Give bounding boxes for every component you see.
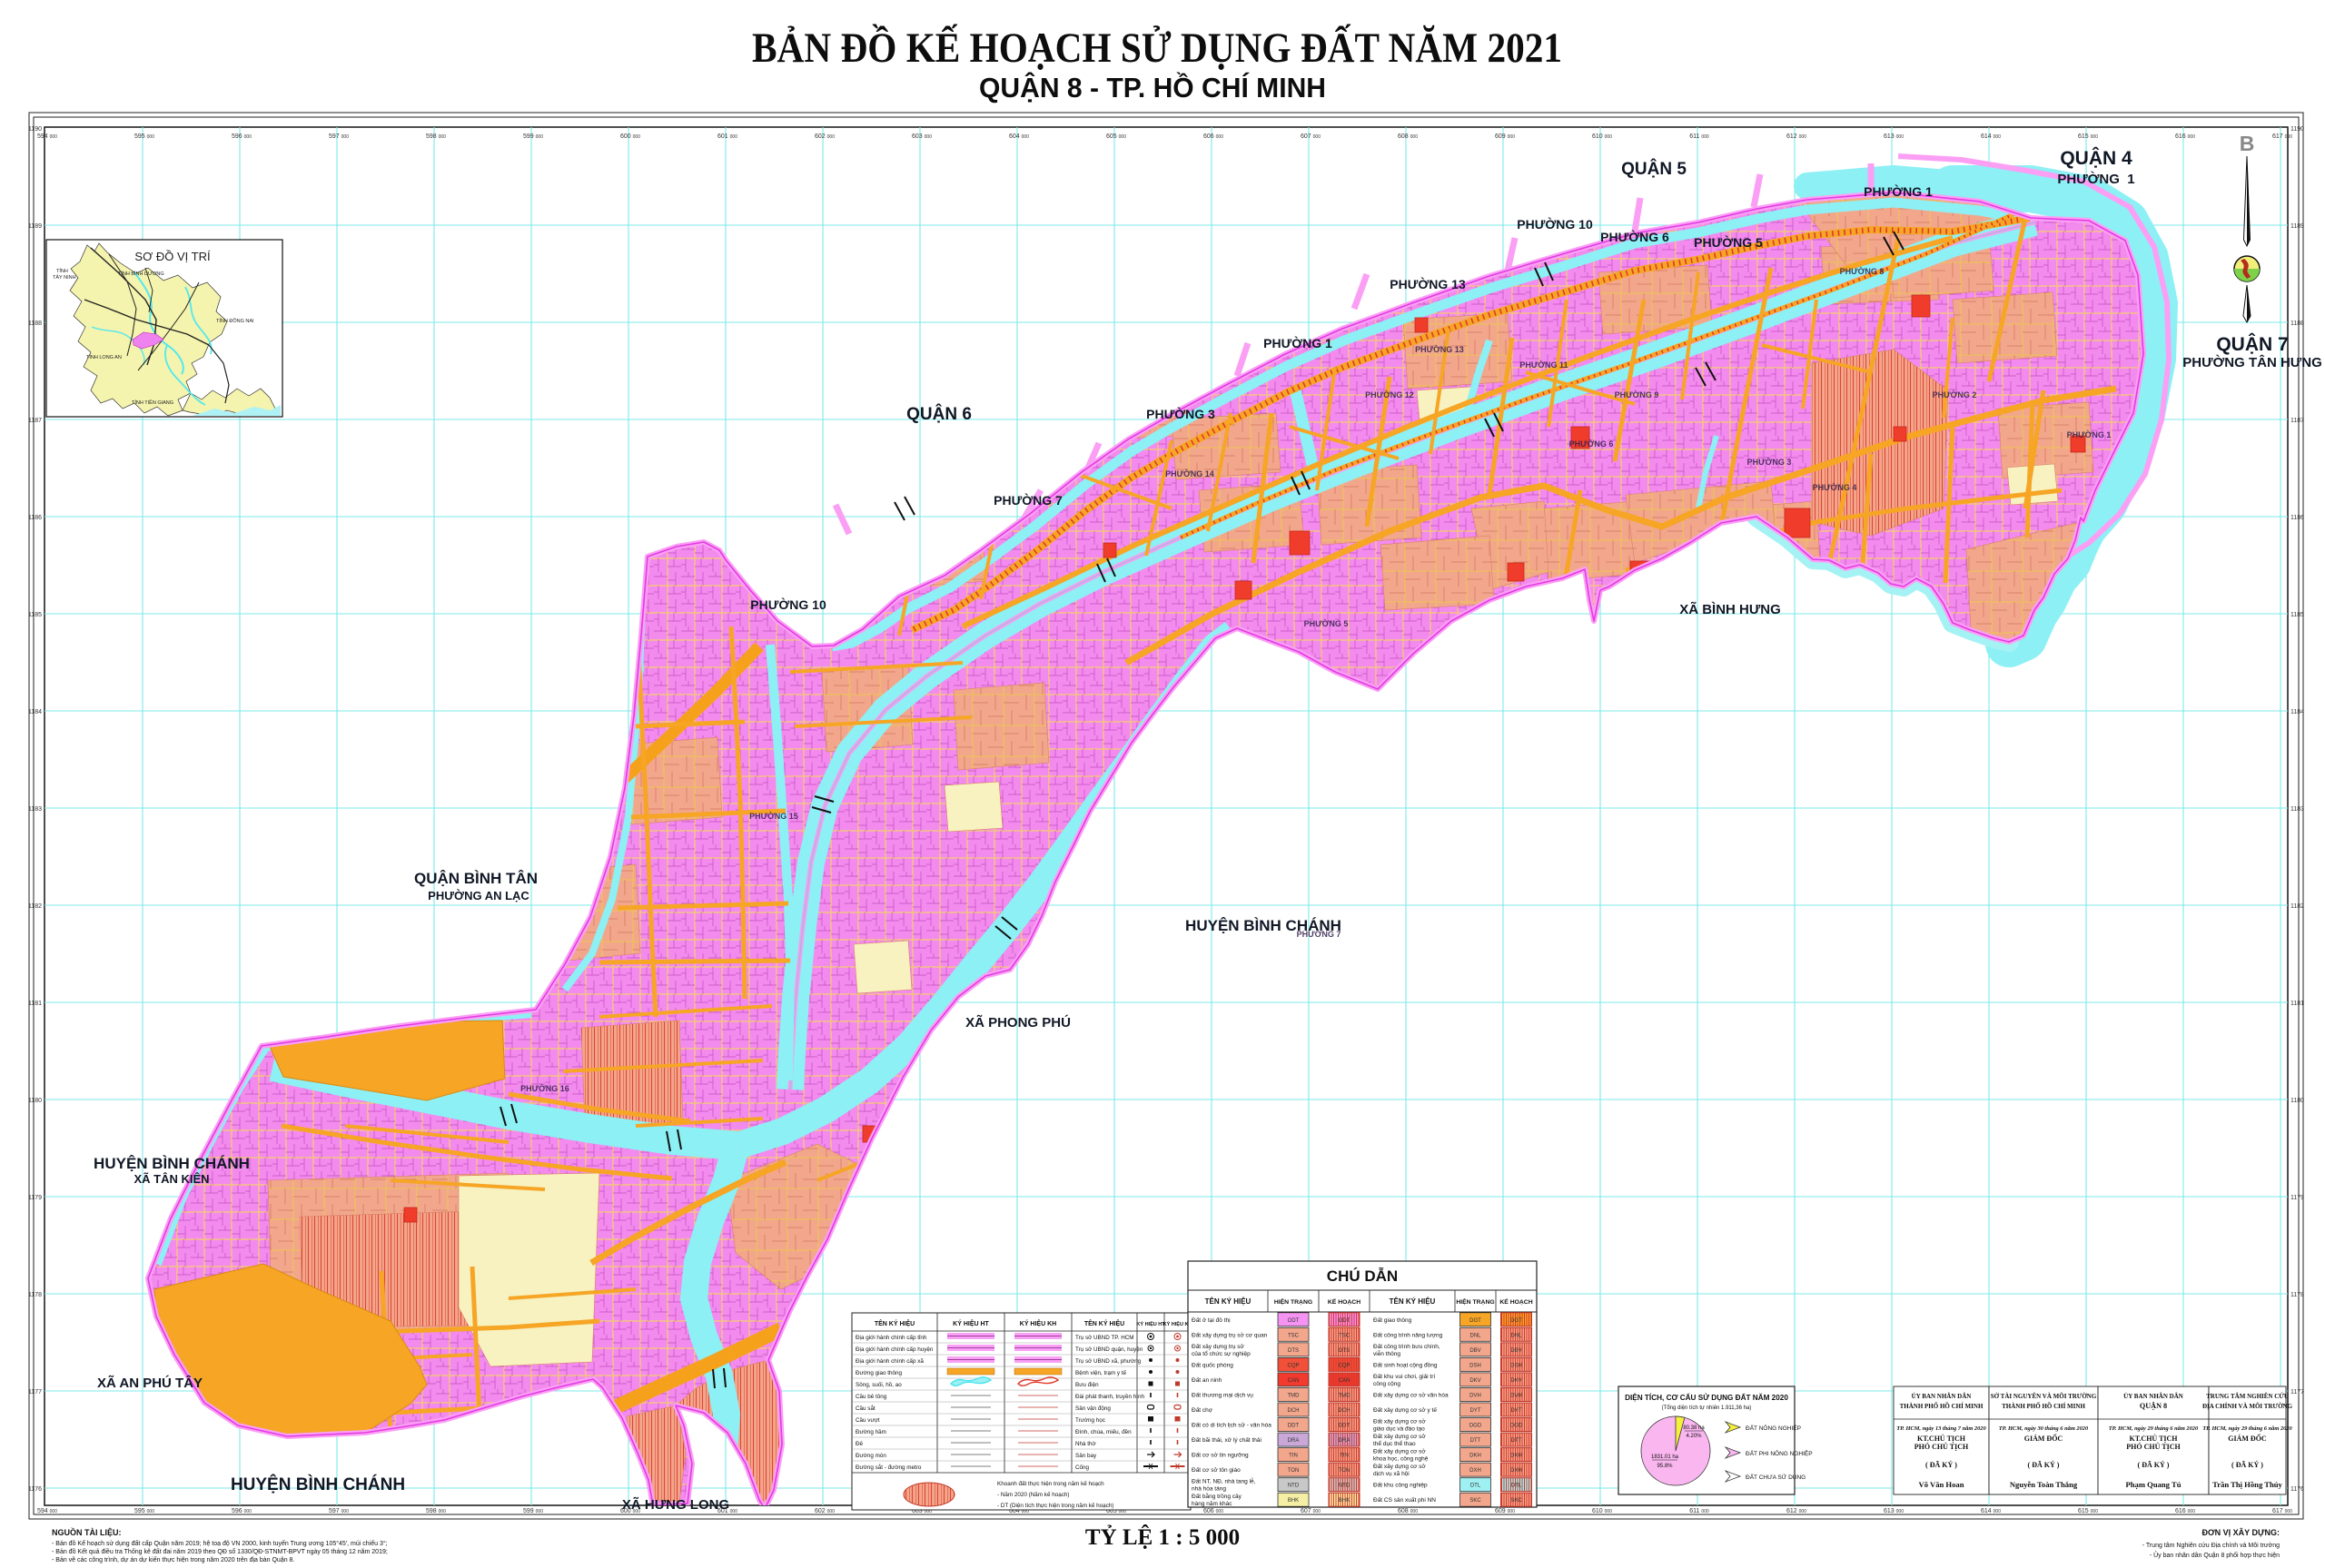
svg-text:Đất công trình bưu chính,: Đất công trình bưu chính, (1373, 1342, 1440, 1350)
svg-text:TP. HCM, ngày 29 tháng 6 năm: TP. HCM, ngày 29 tháng 6 năm 2020 (2202, 1425, 2292, 1432)
svg-text:GIÁM ĐỐC: GIÁM ĐỐC (2024, 1434, 2063, 1443)
svg-text:PHƯỜNG 4: PHƯỜNG 4 (1813, 482, 1857, 492)
svg-text:nhà hỏa táng: nhà hỏa táng (1192, 1485, 1226, 1493)
svg-text:1182: 1182 (28, 903, 42, 910)
svg-text:Đất xây dựng cơ sở: Đất xây dựng cơ sở (1373, 1417, 1426, 1425)
svg-text:HUYỆN BÌNH CHÁNH: HUYỆN BÌNH CHÁNH (1185, 917, 1341, 934)
svg-text:617 000: 617 000 (2272, 133, 2292, 140)
svg-text:611 000: 611 000 (1689, 133, 1709, 140)
svg-text:602 000: 602 000 (815, 133, 835, 140)
svg-text:608 000: 608 000 (1398, 1508, 1418, 1514)
svg-text:PHƯỜNG 3: PHƯỜNG 3 (1747, 457, 1792, 467)
svg-text:DCH: DCH (1339, 1408, 1350, 1414)
svg-text:ỦY BAN NHÂN DÂN: ỦY BAN NHÂN DÂN (1912, 1393, 1972, 1400)
svg-text:ĐƠN VỊ XÂY DỰNG:: ĐƠN VỊ XÂY DỰNG: (2202, 1527, 2280, 1537)
svg-text:TSC: TSC (1339, 1333, 1350, 1338)
svg-text:599 000: 599 000 (523, 133, 543, 140)
svg-text:Trụ sở UBND quận, huyện: Trụ sở UBND quận, huyện (1075, 1346, 1143, 1353)
svg-text:PHƯỜNG AN LẠC: PHƯỜNG AN LẠC (428, 889, 529, 902)
svg-text:DTS: DTS (1288, 1348, 1299, 1354)
svg-text:596 000: 596 000 (232, 1508, 252, 1514)
svg-text:DRA: DRA (1288, 1438, 1300, 1444)
svg-text:DGD: DGD (1469, 1424, 1482, 1429)
svg-text:DXH: DXH (1510, 1468, 1522, 1474)
svg-text:DNL: DNL (1510, 1333, 1522, 1338)
svg-text:TMD: TMD (1288, 1393, 1301, 1398)
svg-text:TÊN KÝ HIỆU: TÊN KÝ HIỆU (1205, 1297, 1252, 1306)
svg-text:Khoanh đất thực hiện trong nă: Khoanh đất thực hiện trong năm kế hoạch (997, 1479, 1104, 1487)
svg-text:TÊN KÝ HIỆU: TÊN KÝ HIỆU (875, 1319, 915, 1327)
svg-text:DDT: DDT (1339, 1424, 1350, 1429)
svg-text:1188: 1188 (2290, 321, 2304, 327)
svg-text:PHƯỜNG 6: PHƯỜNG 6 (1569, 439, 1614, 449)
svg-text:606 000: 606 000 (1203, 133, 1223, 140)
svg-text:603 000: 603 000 (912, 133, 932, 140)
svg-text:DKV: DKV (1510, 1378, 1521, 1384)
svg-text:PHƯỜNG 11: PHƯỜNG 11 (1519, 360, 1568, 370)
svg-text:DTT: DTT (1511, 1438, 1522, 1444)
svg-text:1178: 1178 (28, 1292, 42, 1298)
svg-text:Đất xây dựng trụ sở: Đất xây dựng trụ sở (1192, 1342, 1244, 1350)
svg-text:Nhà thờ: Nhà thờ (1075, 1441, 1096, 1447)
svg-text:PHƯỜNG 5: PHƯỜNG 5 (1304, 618, 1349, 628)
svg-text:Đường giao thông: Đường giao thông (856, 1370, 903, 1376)
svg-text:Võ Văn Hoan: Võ Văn Hoan (1919, 1480, 1964, 1489)
svg-text:QUẬN 6: QUẬN 6 (906, 404, 972, 424)
svg-text:1177: 1177 (28, 1389, 42, 1395)
svg-text:- Ủy ban nhân dân Quận 8 phối: - Ủy ban nhân dân Quận 8 phối hợp thực h… (2150, 1551, 2280, 1559)
svg-text:Đất khu công nghiệp: Đất khu công nghiệp (1373, 1481, 1428, 1489)
svg-text:Đường sắt - đường metro: Đường sắt - đường metro (856, 1463, 922, 1471)
svg-text:1176: 1176 (2290, 1486, 2304, 1493)
svg-text:1180: 1180 (2290, 1098, 2304, 1104)
svg-text:dịch vụ xã hội: dịch vụ xã hội (1373, 1471, 1410, 1477)
svg-text:DIỆN TÍCH, CƠ CẤU SỬ DỤNG ĐẤT: DIỆN TÍCH, CƠ CẤU SỬ DỤNG ĐẤT NĂM 2020 (1625, 1392, 1788, 1402)
svg-text:TIN: TIN (1340, 1454, 1349, 1459)
svg-text:ODT: ODT (1339, 1318, 1350, 1324)
svg-text:DKH: DKH (1469, 1454, 1481, 1459)
svg-text:PHƯỜNG 14: PHƯỜNG 14 (1165, 468, 1214, 478)
svg-text:- Bản đồ Kết quả điều tra Thốn: - Bản đồ Kết quả điều tra Thống kê đất đ… (52, 1547, 388, 1555)
svg-text:PHƯỜNG 2: PHƯỜNG 2 (1933, 390, 1977, 399)
svg-text:Trường học: Trường học (1075, 1417, 1105, 1424)
svg-text:612 000: 612 000 (1786, 133, 1806, 140)
svg-text:600 000: 600 000 (620, 133, 640, 140)
svg-text:Đất ở tại đô thị: Đất ở tại đô thị (1192, 1316, 1231, 1324)
svg-text:Trụ sở UBND xã, phường: Trụ sở UBND xã, phường (1075, 1357, 1142, 1365)
svg-text:PHÓ CHỦ TỊCH: PHÓ CHỦ TỊCH (2126, 1442, 2181, 1451)
svg-text:DVH: DVH (1510, 1393, 1522, 1398)
svg-text:596 000: 596 000 (232, 133, 252, 140)
svg-text:công cộng: công cộng (1373, 1381, 1400, 1387)
svg-text:Đất quốc phòng: Đất quốc phòng (1192, 1360, 1233, 1368)
svg-text:NGUỒN TÀI LIỆU:: NGUỒN TÀI LIỆU: (52, 1527, 122, 1537)
svg-text:594 000: 594 000 (37, 133, 57, 140)
svg-text:1184: 1184 (2290, 709, 2304, 715)
svg-text:Bưu điện: Bưu điện (1075, 1382, 1099, 1388)
svg-text:- Bản vẽ các công trình, dự án: - Bản vẽ các công trình, dự án dự kiến t… (52, 1555, 294, 1563)
svg-text:Cống: Cống (1075, 1463, 1090, 1471)
svg-text:1189: 1189 (28, 223, 42, 230)
svg-text:DSH: DSH (1510, 1363, 1522, 1368)
svg-text:DBV: DBV (1469, 1348, 1480, 1354)
svg-text:Sông, suối, hồ, ao: Sông, suối, hồ, ao (856, 1380, 902, 1388)
svg-text:SKC: SKC (1510, 1498, 1522, 1504)
svg-text:602 000: 602 000 (815, 1508, 835, 1514)
svg-text:598 000: 598 000 (426, 133, 446, 140)
svg-text:QUẬN 4: QUẬN 4 (2060, 147, 2132, 169)
svg-text:Đất xây dựng cơ sở: Đất xây dựng cơ sở (1373, 1447, 1426, 1455)
svg-text:TP. HCM, ngày 29 tháng 6 năm 2: TP. HCM, ngày 29 tháng 6 năm 2020 (2109, 1425, 2199, 1432)
svg-text:Đất cơ sở tín ngưỡng: Đất cơ sở tín ngưỡng (1192, 1451, 1249, 1459)
svg-text:DGT: DGT (1469, 1318, 1481, 1324)
svg-text:QUẬN 8 - TP. HỒ CHÍ MINH: QUẬN 8 - TP. HỒ CHÍ MINH (979, 71, 1326, 104)
svg-text:1183: 1183 (2290, 806, 2304, 813)
svg-text:601 000: 601 000 (717, 133, 737, 140)
svg-text:CAN: CAN (1288, 1378, 1300, 1384)
svg-text:ỦY BAN NHÂN DÂN: ỦY BAN NHÂN DÂN (2123, 1393, 2183, 1400)
svg-text:Đường mòn: Đường mòn (856, 1453, 886, 1459)
svg-text:TP. HCM, ngày 13 tháng 7 năm 2: TP. HCM, ngày 13 tháng 7 năm 2020 (1896, 1425, 1986, 1432)
svg-text:DTL: DTL (1511, 1484, 1522, 1489)
svg-text:617 000: 617 000 (2272, 1508, 2292, 1514)
svg-text:4.20%: 4.20% (1686, 1434, 1702, 1439)
svg-text:DBV: DBV (1510, 1348, 1521, 1354)
svg-text:DGT: DGT (1510, 1318, 1522, 1324)
svg-text:TMD: TMD (1339, 1393, 1351, 1398)
svg-text:595 000: 595 000 (134, 1508, 154, 1514)
svg-text:PHƯỜNG 16: PHƯỜNG 16 (520, 1083, 569, 1093)
svg-text:( ĐÃ KÝ ): ( ĐÃ KÝ ) (2231, 1460, 2263, 1469)
svg-text:PHƯỜNG TÂN HƯNG: PHƯỜNG TÂN HƯNG (2182, 354, 2322, 370)
svg-text:1189: 1189 (2290, 223, 2304, 230)
svg-text:Trần Thị Hồng Thúy: Trần Thị Hồng Thúy (2212, 1480, 2282, 1489)
svg-text:1185: 1185 (2290, 612, 2304, 618)
svg-text:Đất giao thông: Đất giao thông (1373, 1316, 1412, 1324)
svg-text:( ĐÃ KÝ ): ( ĐÃ KÝ ) (1925, 1460, 1957, 1469)
svg-text:PHƯỜNG 13: PHƯỜNG 13 (1390, 276, 1466, 291)
svg-text:TỈNH LONG AN: TỈNH LONG AN (86, 354, 122, 360)
svg-text:( ĐÃ KÝ ): ( ĐÃ KÝ ) (2138, 1460, 2170, 1469)
svg-text:TSC: TSC (1288, 1333, 1300, 1338)
svg-text:KÝ HIỆU HT: KÝ HIỆU HT (1136, 1320, 1165, 1327)
svg-text:HIỆN TRẠNG: HIỆN TRẠNG (1274, 1297, 1312, 1306)
svg-text:615 000: 615 000 (2078, 1508, 2098, 1514)
svg-text:DRA: DRA (1339, 1438, 1350, 1444)
svg-text:Trụ sở UBND TP. HCM: Trụ sở UBND TP. HCM (1075, 1334, 1134, 1341)
svg-text:của tổ chức sự nghiệp: của tổ chức sự nghiệp (1192, 1350, 1251, 1357)
svg-text:(Tổng diện tích tự nhiên 1.911: (Tổng diện tích tự nhiên 1.911,36 ha) (1662, 1405, 1752, 1411)
svg-text:1188: 1188 (28, 321, 42, 327)
svg-text:DYT: DYT (1511, 1408, 1522, 1414)
svg-text:613 000: 613 000 (1884, 133, 1904, 140)
svg-text:Đất thương mại dịch vụ: Đất thương mại dịch vụ (1192, 1390, 1253, 1398)
svg-text:Bệnh viện, trạm y tế: Bệnh viện, trạm y tế (1075, 1368, 1126, 1376)
svg-text:B: B (2240, 132, 2255, 155)
svg-text:BẢN ĐỒ KẾ HOẠCH SỬ DỤNG ĐẤT NĂ: BẢN ĐỒ KẾ HOẠCH SỬ DỤNG ĐẤT NĂM 2021 (752, 24, 1562, 72)
svg-text:Đường hầm: Đường hầm (856, 1427, 886, 1435)
svg-text:PHƯỜNG 1: PHƯỜNG 1 (2067, 429, 2112, 439)
svg-text:HUYỆN BÌNH CHÁNH: HUYỆN BÌNH CHÁNH (231, 1474, 405, 1494)
svg-text:KÝ HIỆU HT: KÝ HIỆU HT (953, 1319, 989, 1327)
svg-text:SƠ ĐỒ VỊ TRÍ: SƠ ĐỒ VỊ TRÍ (134, 250, 211, 263)
svg-text:PHƯỜNG 10: PHƯỜNG 10 (750, 597, 826, 612)
svg-text:615 000: 615 000 (2078, 133, 2098, 140)
svg-text:Sân vận động: Sân vận động (1075, 1405, 1111, 1412)
svg-text:Nguyễn Toàn Thắng: Nguyễn Toàn Thắng (2010, 1480, 2078, 1489)
svg-text:SKC: SKC (1469, 1498, 1481, 1504)
svg-text:NTD: NTD (1339, 1484, 1350, 1489)
svg-text:609 000: 609 000 (1495, 133, 1515, 140)
svg-text:DTL: DTL (1470, 1484, 1481, 1489)
svg-text:Đất CS sản xuất phi NN: Đất CS sản xuất phi NN (1373, 1495, 1436, 1504)
svg-text:- Bản đồ Kế hoạch sử dụng đất: - Bản đồ Kế hoạch sử dụng đất cấp Quận n… (52, 1539, 388, 1547)
svg-text:607 000: 607 000 (1301, 133, 1321, 140)
svg-text:1186: 1186 (2290, 515, 2304, 521)
svg-text:CQP: CQP (1287, 1363, 1299, 1368)
svg-text:DDT: DDT (1288, 1424, 1300, 1429)
svg-text:Đất cơ sở tôn giáo: Đất cơ sở tôn giáo (1192, 1465, 1241, 1474)
svg-text:Đất xây dựng cơ sở: Đất xây dựng cơ sở (1373, 1432, 1426, 1440)
svg-text:610 000: 610 000 (1592, 1508, 1612, 1514)
svg-text:609 000: 609 000 (1495, 1508, 1515, 1514)
svg-text:95.8%: 95.8% (1657, 1464, 1673, 1469)
svg-text:CQP: CQP (1338, 1363, 1350, 1368)
svg-text:THÀNH PHỐ HỒ CHÍ MINH: THÀNH PHỐ HỒ CHÍ MINH (2002, 1403, 2085, 1410)
svg-text:HUYỆN BÌNH CHÁNH: HUYỆN BÌNH CHÁNH (94, 1155, 250, 1172)
svg-text:CHÚ DẪN: CHÚ DẪN (1327, 1267, 1398, 1285)
svg-text:TON: TON (1339, 1468, 1350, 1474)
svg-text:1178: 1178 (2290, 1292, 2304, 1298)
svg-text:616 000: 616 000 (2175, 133, 2195, 140)
svg-text:Đất bãi thải, xử lý chất thải: Đất bãi thải, xử lý chất thải (1192, 1435, 1261, 1444)
svg-text:PHƯỜNG 1: PHƯỜNG 1 (1263, 335, 1332, 350)
svg-text:599 000: 599 000 (523, 1508, 543, 1514)
svg-text:TỶ LỆ 1 : 5 000: TỶ LỆ 1 : 5 000 (1085, 1524, 1240, 1550)
svg-text:THÀNH PHỐ HỒ CHÍ MINH: THÀNH PHỐ HỒ CHÍ MINH (1900, 1403, 1984, 1410)
svg-text:TỈNH: TỈNH (56, 268, 68, 274)
svg-text:TÊN KÝ HIỆU: TÊN KÝ HIỆU (1084, 1319, 1124, 1327)
svg-text:1190: 1190 (28, 126, 42, 133)
svg-text:XÃ BÌNH HƯNG: XÃ BÌNH HƯNG (1679, 601, 1781, 617)
svg-text:1185: 1185 (28, 612, 42, 618)
svg-text:SỞ TÀI NGUYÊN VÀ MÔI TRƯỜNG: SỞ TÀI NGUYÊN VÀ MÔI TRƯỜNG (1991, 1393, 2097, 1400)
svg-text:Đất khu vui chơi, giải trí: Đất khu vui chơi, giải trí (1373, 1372, 1435, 1380)
svg-text:PHƯỜNG 1: PHƯỜNG 1 (1864, 183, 1933, 199)
svg-text:TỈNH BÌNH DƯƠNG: TỈNH BÌNH DƯƠNG (118, 271, 164, 277)
svg-text:597 000: 597 000 (329, 1508, 349, 1514)
svg-text:PHƯỜNG 7: PHƯỜNG 7 (994, 492, 1063, 508)
svg-text:NTD: NTD (1288, 1484, 1300, 1489)
svg-text:- Trung tâm Nghiên cứu Địa chí: - Trung tâm Nghiên cứu Địa chính và Môi … (2142, 1543, 2280, 1549)
svg-text:GIÁM ĐỐC: GIÁM ĐỐC (2228, 1434, 2267, 1443)
svg-text:Đất sinh hoạt cộng đồng: Đất sinh hoạt cộng đồng (1373, 1360, 1438, 1368)
svg-text:DKV: DKV (1469, 1378, 1480, 1384)
svg-text:DKH: DKH (1510, 1454, 1522, 1459)
svg-text:611 000: 611 000 (1689, 1508, 1709, 1514)
svg-text:Đất có di tích lịch sử - văn h: Đất có di tích lịch sử - văn hóa (1192, 1421, 1271, 1429)
svg-text:QUẬN 7: QUẬN 7 (2216, 333, 2288, 355)
svg-text:DSH: DSH (1469, 1363, 1481, 1368)
svg-text:Đê: Đê (856, 1441, 864, 1447)
svg-text:PHƯỜNG 3: PHƯỜNG 3 (1146, 406, 1215, 421)
svg-text:thể dục thể thao: thể dục thể thao (1373, 1440, 1416, 1447)
svg-text:1831.01 ha: 1831.01 ha (1651, 1455, 1679, 1460)
svg-text:Phạm Quang Tú: Phạm Quang Tú (2126, 1480, 2182, 1489)
svg-text:Cầu vượt: Cầu vượt (856, 1415, 880, 1424)
svg-text:QUẬN BÌNH TÂN: QUẬN BÌNH TÂN (414, 870, 538, 887)
svg-text:DCH: DCH (1288, 1408, 1300, 1414)
svg-text:1179: 1179 (2290, 1195, 2304, 1201)
svg-text:613 000: 613 000 (1884, 1508, 1904, 1514)
svg-text:1183: 1183 (28, 806, 42, 813)
svg-text:XÃ HƯNG LONG: XÃ HƯNG LONG (622, 1496, 729, 1513)
svg-text:1187: 1187 (28, 418, 42, 424)
svg-text:TÂY NINH: TÂY NINH (53, 274, 76, 281)
svg-text:PHƯỜNG 9: PHƯỜNG 9 (1615, 390, 1659, 399)
svg-text:Đất xây dựng cơ sở y tế: Đất xây dựng cơ sở y tế (1373, 1405, 1437, 1414)
svg-text:Cầu sắt: Cầu sắt (856, 1404, 876, 1412)
svg-text:1190: 1190 (2290, 126, 2304, 133)
svg-text:DYT: DYT (1470, 1408, 1481, 1414)
svg-text:1176: 1176 (28, 1486, 42, 1493)
svg-text:giáo dục và đào tạo: giáo dục và đào tạo (1373, 1426, 1425, 1433)
svg-text:CAN: CAN (1339, 1378, 1350, 1384)
svg-text:605 000: 605 000 (1106, 133, 1126, 140)
svg-text:DTT: DTT (1470, 1438, 1481, 1444)
svg-text:khoa học, công nghệ: khoa học, công nghệ (1373, 1456, 1429, 1463)
svg-text:607 000: 607 000 (1301, 1508, 1321, 1514)
svg-text:ODT: ODT (1288, 1318, 1300, 1324)
svg-text:BHK: BHK (1339, 1498, 1350, 1504)
svg-text:612 000: 612 000 (1786, 1508, 1806, 1514)
svg-text:1186: 1186 (28, 515, 42, 521)
svg-text:1184: 1184 (28, 709, 42, 715)
svg-text:TP. HCM, ngày 30 tháng 6 năm 2: TP. HCM, ngày 30 tháng 6 năm 2020 (1999, 1425, 2089, 1432)
svg-text:595 000: 595 000 (134, 133, 154, 140)
svg-text:TÊN KÝ HIỆU: TÊN KÝ HIỆU (1390, 1297, 1436, 1306)
svg-text:TỈNH ĐỒNG NAI: TỈNH ĐỒNG NAI (216, 318, 254, 324)
svg-text:PHƯỜNG 12: PHƯỜNG 12 (1365, 390, 1414, 399)
svg-text:Đất chợ: Đất chợ (1192, 1405, 1213, 1414)
svg-text:PHƯỜNG 8: PHƯỜNG 8 (1840, 266, 1885, 276)
svg-text:594 000: 594 000 (37, 1508, 57, 1514)
svg-text:1181: 1181 (28, 1001, 42, 1007)
svg-text:1181: 1181 (2290, 1001, 2304, 1007)
svg-text:BHK: BHK (1288, 1498, 1299, 1504)
svg-text:KÝ HIỆU KH: KÝ HIỆU KH (1020, 1319, 1056, 1327)
svg-text:( ĐÃ KÝ ): ( ĐÃ KÝ ) (2028, 1460, 2060, 1469)
svg-text:606 000: 606 000 (1203, 1508, 1223, 1514)
svg-text:1187: 1187 (2290, 418, 2304, 424)
svg-text:Đất xây dựng cơ sở văn hóa: Đất xây dựng cơ sở văn hóa (1373, 1390, 1449, 1398)
svg-text:DXH: DXH (1469, 1468, 1481, 1474)
svg-text:Đất NT, NĐ, nhà tang lễ,: Đất NT, NĐ, nhà tang lễ, (1192, 1477, 1256, 1485)
svg-text:Đất bằng trồng cây: Đất bằng trồng cây (1192, 1492, 1242, 1500)
svg-text:- Năm 2020 (Năm kế hoạch): - Năm 2020 (Năm kế hoạch) (997, 1490, 1069, 1498)
svg-text:viễn thông: viễn thông (1373, 1349, 1400, 1357)
svg-text:- DT (Diện tích thực hiện tron: - DT (Diện tích thực hiện trong năm kế h… (997, 1501, 1113, 1509)
svg-text:614 000: 614 000 (1981, 1508, 2001, 1514)
svg-text:1177: 1177 (2290, 1389, 2304, 1395)
svg-text:Đất xây dựng trụ sở cơ quan: Đất xây dựng trụ sở cơ quan (1192, 1330, 1268, 1338)
svg-text:PHÓ CHỦ TỊCH: PHÓ CHỦ TỊCH (1914, 1442, 1969, 1451)
svg-text:Đất công trình năng lượng: Đất công trình năng lượng (1373, 1330, 1443, 1338)
svg-text:Địa giới hành chính cấp xã: Địa giới hành chính cấp xã (856, 1356, 924, 1365)
svg-text:608 000: 608 000 (1398, 133, 1418, 140)
svg-text:Cầu bê tông: Cầu bê tông (856, 1392, 887, 1400)
svg-text:616 000: 616 000 (2175, 1508, 2195, 1514)
svg-text:XÃ AN PHÚ TÂY: XÃ AN PHÚ TÂY (97, 1375, 203, 1391)
svg-text:XÃ PHONG PHÚ: XÃ PHONG PHÚ (965, 1014, 1071, 1031)
svg-text:Địa giới hành chính cấp huyện: Địa giới hành chính cấp huyện (856, 1345, 934, 1353)
svg-text:PHƯỜNG 5: PHƯỜNG 5 (1694, 234, 1763, 250)
svg-text:XÃ TÂN KIÊN: XÃ TÂN KIÊN (134, 1172, 209, 1186)
svg-text:1179: 1179 (28, 1195, 42, 1201)
svg-text:614 000: 614 000 (1981, 133, 2001, 140)
svg-text:Sân bay: Sân bay (1075, 1453, 1097, 1459)
svg-text:Đài phát thanh, truyền hình: Đài phát thanh, truyền hình (1075, 1392, 1144, 1400)
svg-text:598 000: 598 000 (426, 1508, 446, 1514)
svg-text:PHƯỜNG 6: PHƯỜNG 6 (1600, 229, 1669, 244)
svg-text:604 000: 604 000 (1009, 133, 1029, 140)
svg-text:610 000: 610 000 (1592, 133, 1612, 140)
svg-text:80.38 ha: 80.38 ha (1683, 1425, 1705, 1431)
svg-text:PHƯỜNG 15: PHƯỜNG 15 (749, 811, 798, 821)
svg-text:Đất xây dựng cơ sở: Đất xây dựng cơ sở (1373, 1462, 1426, 1470)
svg-text:1180: 1180 (28, 1098, 42, 1104)
svg-text:QUẬN 8: QUẬN 8 (2140, 1402, 2167, 1410)
svg-text:HIỆN TRẠNG: HIỆN TRẠNG (1456, 1297, 1494, 1306)
svg-text:1182: 1182 (2290, 903, 2304, 910)
svg-text:QUẬN 5: QUẬN 5 (1621, 159, 1687, 179)
svg-text:DTS: DTS (1339, 1348, 1350, 1354)
svg-text:Đất an ninh: Đất an ninh (1192, 1376, 1222, 1384)
svg-text:KT.CHỦ TỊCH: KT.CHỦ TỊCH (2129, 1434, 2178, 1443)
svg-text:PHƯỜNG 1: PHƯỜNG 1 (2057, 171, 2134, 187)
svg-text:ĐỊA CHÍNH VÀ MÔI TRƯỜNG: ĐỊA CHÍNH VÀ MÔI TRƯỜNG (2202, 1403, 2293, 1410)
svg-text:KT.CHỦ TỊCH: KT.CHỦ TỊCH (1917, 1434, 1966, 1443)
svg-text:DVH: DVH (1469, 1393, 1481, 1398)
svg-text:TON: TON (1288, 1468, 1300, 1474)
svg-text:TRUNG TÂM NGHIÊN CỨU: TRUNG TÂM NGHIÊN CỨU (2206, 1393, 2289, 1400)
svg-text:TỈNH TIỀN GIANG: TỈNH TIỀN GIANG (132, 399, 173, 406)
svg-text:Đình, chùa, miếu, đền: Đình, chùa, miếu, đền (1075, 1427, 1132, 1435)
svg-text:597 000: 597 000 (329, 133, 349, 140)
svg-text:hàng năm khác: hàng năm khác (1192, 1501, 1232, 1507)
svg-text:Địa giới hành chính cấp tỉnh: Địa giới hành chính cấp tỉnh (856, 1333, 927, 1341)
svg-text:PHƯỜNG 10: PHƯỜNG 10 (1517, 216, 1593, 232)
svg-text:TIN: TIN (1289, 1454, 1298, 1459)
svg-text:DGD: DGD (1510, 1424, 1523, 1429)
svg-text:DNL: DNL (1469, 1333, 1481, 1338)
svg-text:PHƯỜNG 13: PHƯỜNG 13 (1415, 344, 1464, 354)
